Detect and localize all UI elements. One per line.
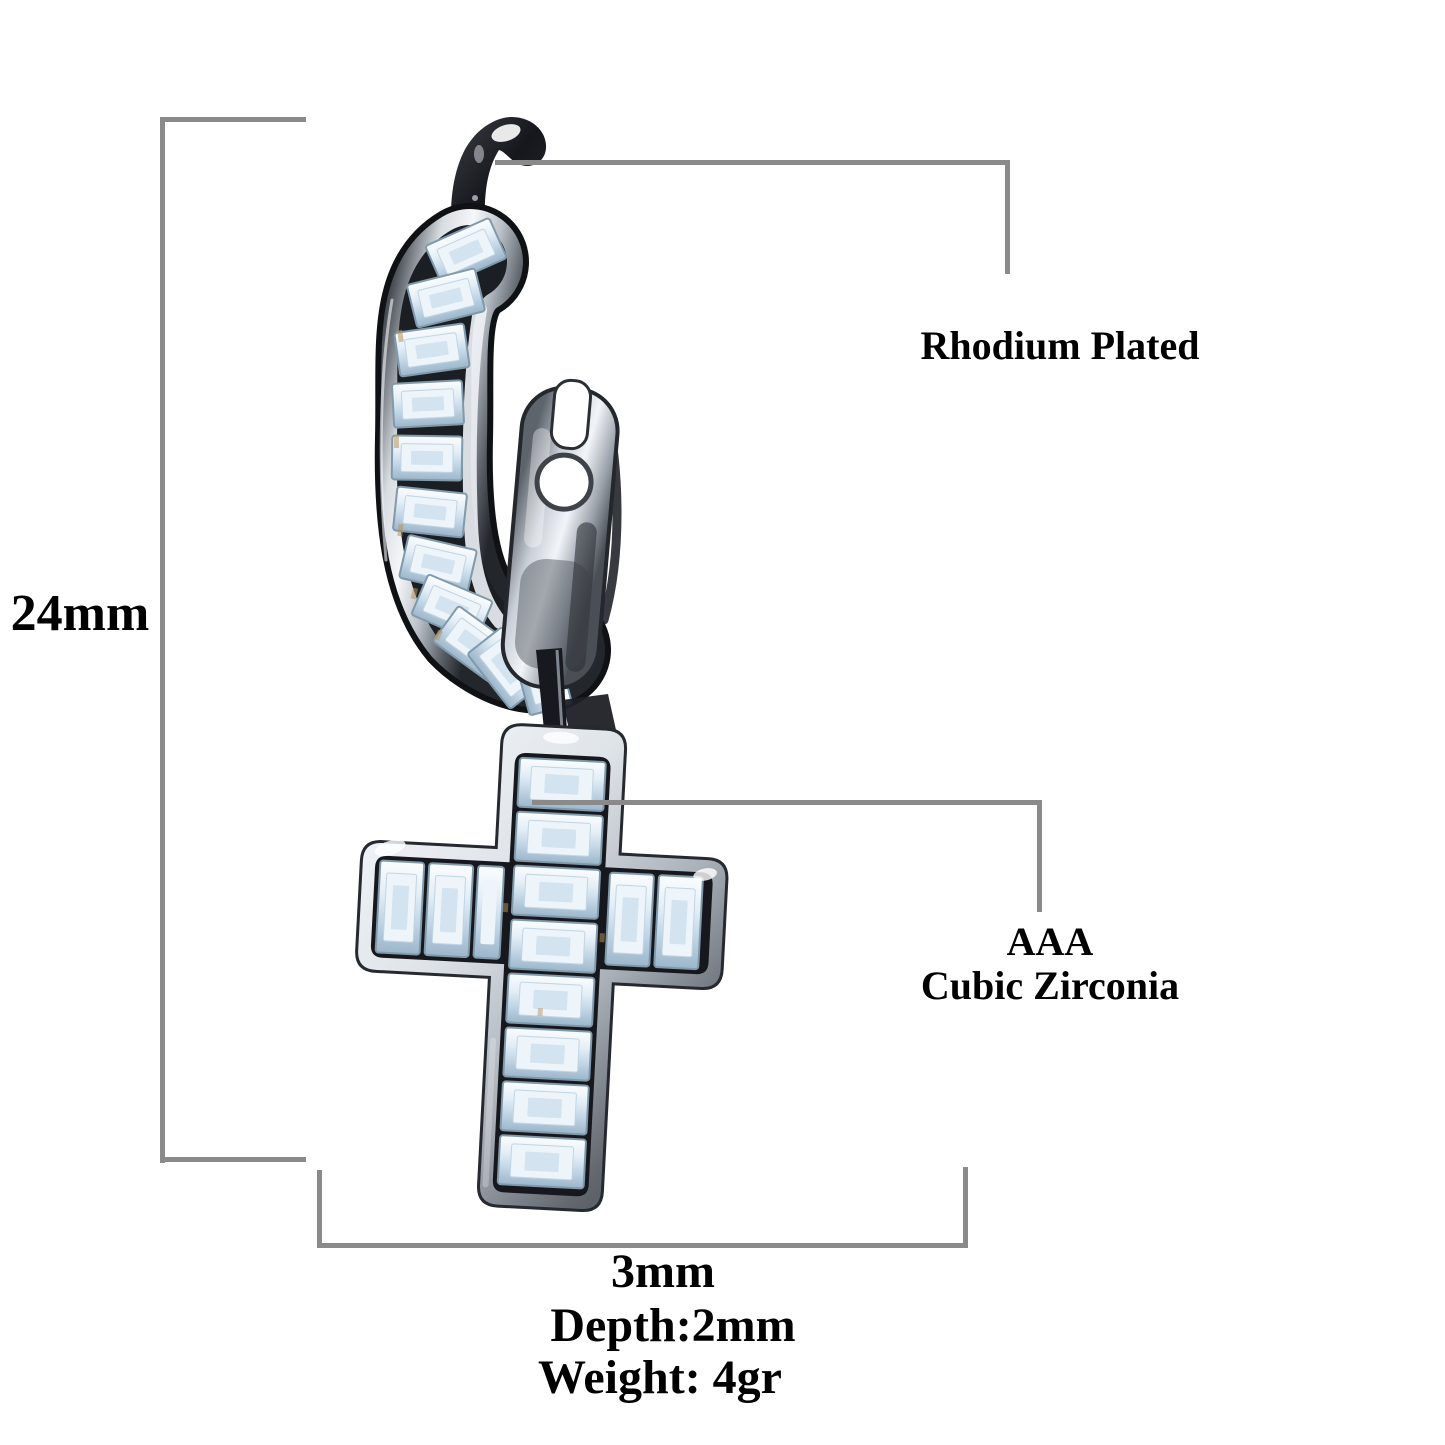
depth-spec-label: Depth:2mm <box>513 1298 833 1353</box>
width-dimension-label: 3mm <box>513 1244 813 1299</box>
weight-spec-label: Weight: 4gr <box>500 1350 820 1405</box>
stone-grade-text: AAA <box>895 920 1205 964</box>
product-dimension-diagram: 24mm 3mm Rhodium Plated AAA Cubic Zircon… <box>0 0 1445 1445</box>
stone-type-text: Cubic Zirconia <box>895 964 1205 1008</box>
width-dimension-line-right <box>963 1167 968 1248</box>
earring-product-image <box>0 0 1445 1445</box>
height-dimension-label: 24mm <box>0 584 160 643</box>
height-dimension-line-vertical <box>160 117 165 1163</box>
height-dimension-line-top <box>160 117 306 122</box>
stone-callout-label: AAA Cubic Zirconia <box>895 920 1205 1008</box>
plating-callout-line-vertical <box>1005 160 1010 274</box>
cross-pendant <box>344 717 735 1217</box>
plating-callout-line-horizontal <box>495 160 1010 165</box>
height-dimension-line-bottom <box>160 1157 306 1162</box>
stone-callout-line-vertical <box>1037 800 1042 912</box>
latch-hole <box>535 453 594 512</box>
latch-notch <box>550 379 592 450</box>
width-dimension-line-left <box>317 1170 322 1248</box>
plating-callout-label: Rhodium Plated <box>905 322 1215 369</box>
stone-callout-line-horizontal <box>532 800 1042 805</box>
